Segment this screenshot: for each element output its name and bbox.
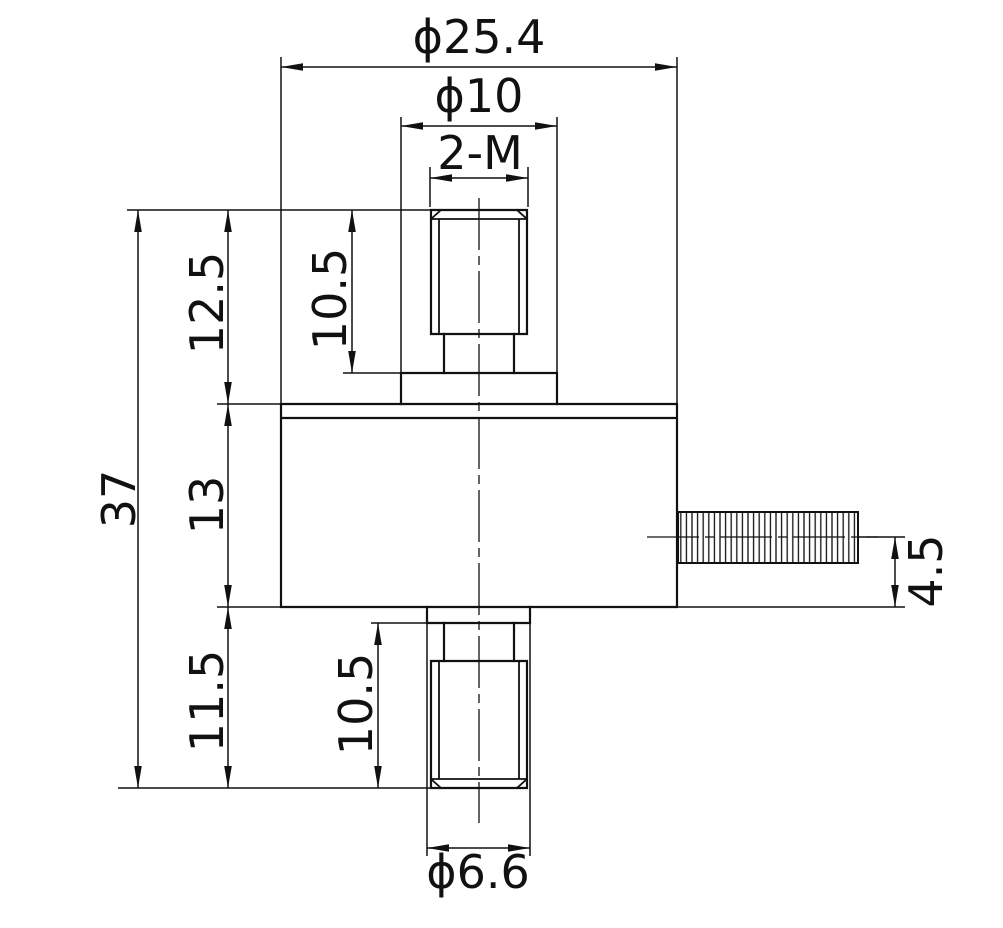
dim-label-thread: 2-M bbox=[437, 126, 523, 180]
dim-label-cable-offset: 4.5 bbox=[899, 534, 953, 607]
dim-stud-step-diameter: ϕ6.6 bbox=[426, 623, 530, 899]
dim-label-overall-width: ϕ25.4 bbox=[413, 10, 546, 64]
dim-label-boss-diameter: ϕ10 bbox=[435, 69, 524, 123]
technical-drawing: ϕ25.4 ϕ10 2-M 37 12.5 13 11. bbox=[0, 0, 1003, 928]
dim-upper-section-height: 12.5 bbox=[180, 210, 234, 404]
dim-label-body-height: 13 bbox=[180, 476, 234, 535]
dim-label-lower-section-height: 11.5 bbox=[180, 650, 234, 752]
dim-lower-section-height: 11.5 bbox=[180, 607, 234, 788]
dim-label-upper-section-height: 12.5 bbox=[180, 252, 234, 354]
dim-overall-height: 37 bbox=[92, 210, 146, 788]
dim-label-upper-thread-length: 10.5 bbox=[303, 248, 357, 350]
dim-lower-thread-length: 10.5 bbox=[329, 623, 427, 788]
dim-cable-offset: 4.5 bbox=[858, 534, 953, 607]
dimensions: ϕ25.4 ϕ10 2-M 37 12.5 13 11. bbox=[92, 10, 953, 899]
dim-body-height: 13 bbox=[180, 404, 234, 607]
dim-upper-thread-length: 10.5 bbox=[303, 210, 401, 373]
dim-thread: 2-M bbox=[430, 126, 528, 207]
drawing-canvas: ϕ25.4 ϕ10 2-M 37 12.5 13 11. bbox=[0, 0, 1003, 928]
extension-lines bbox=[118, 210, 905, 788]
dim-label-stud-step-diameter: ϕ6.6 bbox=[426, 845, 530, 899]
dim-label-lower-thread-length: 10.5 bbox=[329, 653, 383, 755]
dim-label-overall-height: 37 bbox=[92, 470, 146, 529]
center-lines bbox=[479, 198, 878, 823]
